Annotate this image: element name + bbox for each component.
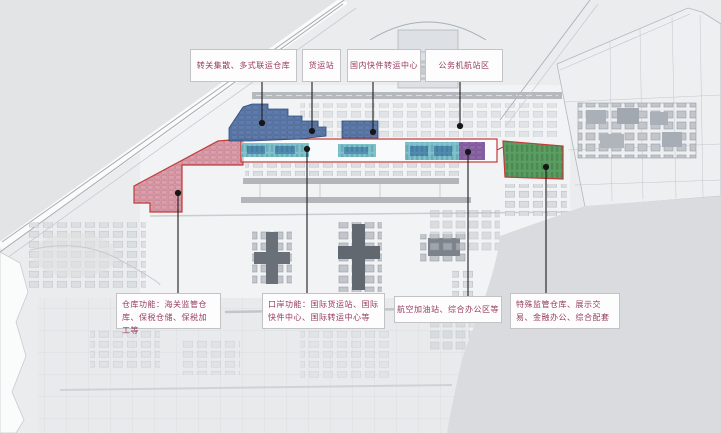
callout-port-functions-box: 口岸功能：国际货运站、国际快件中心、国际转运中心等 — [262, 293, 385, 329]
callout-cargo-terminal-label: 货运站 — [309, 60, 335, 71]
airport-logistics-plan-map: 转关集散、多式联运仓库 货运站 国内快件转运中心 公务机航站区 仓库功能：海关监… — [0, 0, 721, 433]
west-clusters — [28, 222, 160, 290]
callout-warehouse-functions-box: 仓库功能：海关监管仓库、保税仓储、保税加工等 — [116, 293, 221, 329]
zone-fuel-office-purple — [459, 142, 485, 160]
callout-business-aviation-box: 公务机航站区 — [425, 49, 503, 82]
callout-transfer-warehouse-box: 转关集散、多式联运仓库 — [190, 49, 297, 82]
dot-domestic-express — [370, 129, 376, 135]
callout-cargo-terminal-box: 货运站 — [302, 49, 341, 82]
dot-cargo-terminal — [309, 128, 315, 134]
callout-fuel-office-label: 航空加油站、综合办公区等 — [397, 304, 499, 315]
runway-mid-1 — [243, 178, 459, 184]
dot-port-functions — [304, 146, 310, 152]
callout-business-aviation-label: 公务机航站区 — [439, 60, 490, 71]
callout-transfer-warehouse-label: 转关集散、多式联运仓库 — [197, 60, 291, 71]
dot-business-aviation — [457, 123, 463, 129]
callout-domestic-express-label: 国内快件转运中心 — [350, 60, 418, 71]
dot-fuel-office — [465, 149, 471, 155]
callout-fuel-office-box: 航空加油站、综合办公区等 — [394, 296, 502, 323]
port-strip-rows — [245, 163, 460, 176]
south-of-green-rows — [505, 184, 567, 216]
runway-mid-2 — [241, 197, 471, 203]
callout-special-supervision-box: 特殊监管仓库、展示交易、金融办公、综合配套 — [510, 293, 620, 329]
callout-domestic-express-box: 国内快件转运中心 — [347, 49, 421, 82]
dot-warehouse-functions — [175, 190, 181, 196]
callout-special-supervision-label: 特殊监管仓库、展示交易、金融办公、综合配套 — [516, 300, 610, 322]
dot-special-supervision — [543, 164, 549, 170]
callout-port-functions-label: 口岸功能：国际货运站、国际快件中心、国际转运中心等 — [268, 300, 379, 322]
dot-transfer-warehouse — [259, 120, 265, 126]
zone-special-supervision-green — [497, 141, 563, 179]
cargo-apron-rows — [300, 103, 560, 137]
